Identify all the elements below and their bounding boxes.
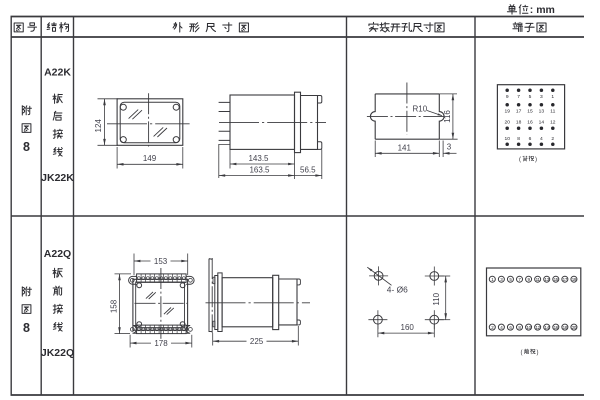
svg-text:19: 19 (504, 108, 510, 114)
svg-text:4: 4 (540, 136, 543, 142)
svg-text:1: 1 (551, 94, 554, 100)
svg-text:3: 3 (540, 94, 543, 100)
svg-text:6: 6 (529, 136, 532, 142)
svg-text:: mm: : mm (530, 4, 555, 16)
svg-text:110: 110 (432, 292, 441, 305)
svg-text:163.5: 163.5 (249, 165, 270, 174)
svg-text:153: 153 (154, 257, 168, 266)
svg-text:149: 149 (143, 154, 157, 163)
svg-text:R10: R10 (413, 105, 428, 114)
svg-text:3: 3 (447, 143, 452, 152)
svg-text:4- Ø6: 4- Ø6 (387, 285, 408, 295)
svg-text:9: 9 (506, 94, 509, 100)
svg-text:18: 18 (516, 120, 522, 126)
svg-text:): ) (535, 157, 537, 163)
svg-text:7: 7 (517, 94, 520, 100)
svg-text:116: 116 (443, 110, 452, 123)
svg-text:17: 17 (516, 108, 522, 114)
svg-text:178: 178 (154, 339, 168, 348)
svg-text:2: 2 (551, 136, 554, 142)
svg-text:225: 225 (250, 337, 264, 346)
svg-text:(: ( (521, 350, 523, 356)
svg-text:A22Q: A22Q (44, 248, 71, 260)
svg-text:8: 8 (23, 140, 30, 154)
svg-text:124: 124 (94, 119, 103, 133)
svg-text:158: 158 (109, 299, 118, 313)
svg-text:16: 16 (527, 120, 533, 126)
svg-text:12: 12 (550, 120, 556, 126)
svg-text:14: 14 (539, 120, 545, 126)
svg-text:8: 8 (517, 136, 520, 142)
svg-text:A22K: A22K (44, 66, 71, 78)
svg-text:(: ( (519, 157, 521, 163)
svg-text:11: 11 (550, 108, 555, 114)
svg-text:160: 160 (401, 323, 415, 332)
svg-text:10: 10 (504, 136, 510, 142)
svg-text:143.5: 143.5 (248, 154, 269, 163)
svg-text:): ) (537, 350, 539, 356)
svg-text:15: 15 (527, 108, 533, 114)
svg-text:8: 8 (23, 321, 30, 335)
svg-text:JK22K: JK22K (41, 172, 74, 184)
svg-text:JK22Q: JK22Q (41, 347, 74, 359)
svg-text:5: 5 (529, 94, 532, 100)
svg-text:56.5: 56.5 (300, 165, 316, 174)
svg-text:13: 13 (539, 108, 545, 114)
svg-text:141: 141 (398, 144, 412, 153)
svg-text:20: 20 (504, 120, 510, 126)
